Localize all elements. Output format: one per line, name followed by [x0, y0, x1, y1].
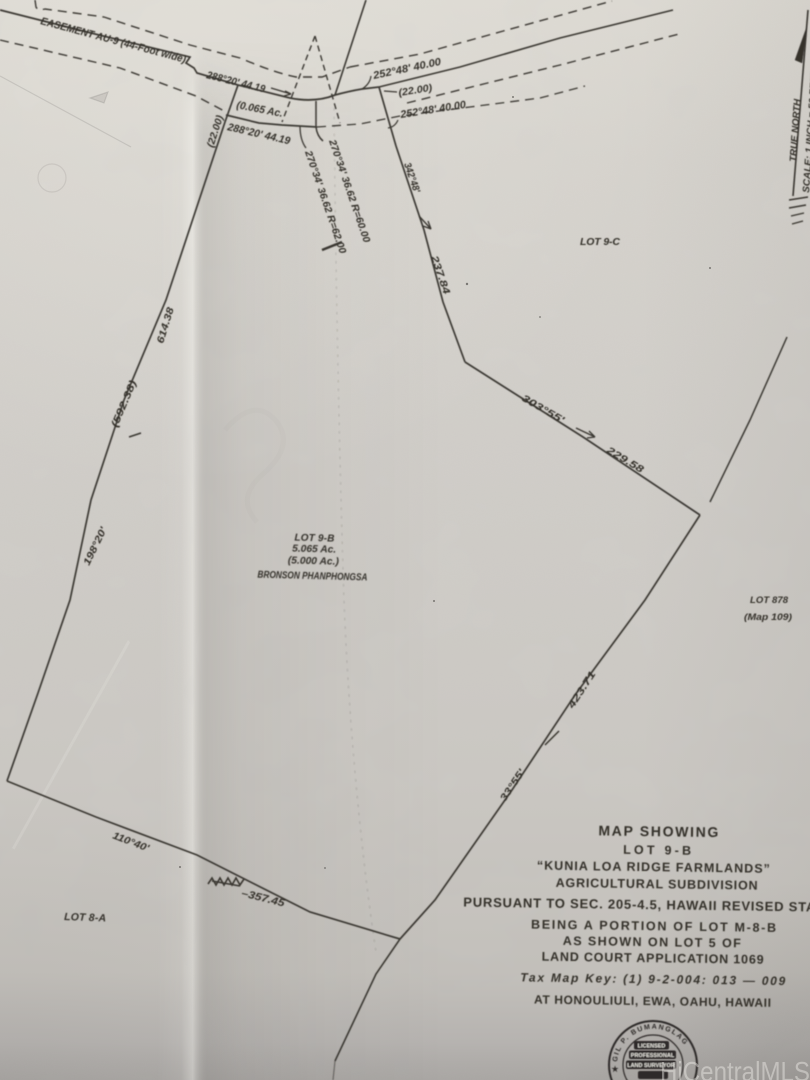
- svg-text:LOT 878: LOT 878: [750, 595, 789, 606]
- svg-text:HiCentralMLS: HiCentralMLS: [660, 1056, 810, 1080]
- svg-text:(Map 109): (Map 109): [744, 612, 792, 623]
- svg-text:LICENSED: LICENSED: [638, 1044, 666, 1050]
- svg-text:LOT 8-A: LOT 8-A: [64, 911, 106, 924]
- svg-text:MAP SHOWING: MAP SHOWING: [598, 822, 718, 840]
- svg-text:AS SHOWN ON LOT 5 OF: AS SHOWN ON LOT 5 OF: [563, 934, 742, 950]
- svg-text:AGRICULTURAL SUBDIVISION: AGRICULTURAL SUBDIVISION: [556, 876, 758, 893]
- svg-text:5.065 Ac.: 5.065 Ac.: [292, 544, 336, 556]
- svg-text:LOT 9-C: LOT 9-C: [580, 236, 620, 248]
- svg-text:★: ★: [611, 1064, 619, 1074]
- svg-text:(5.000 Ac.): (5.000 Ac.): [288, 555, 340, 567]
